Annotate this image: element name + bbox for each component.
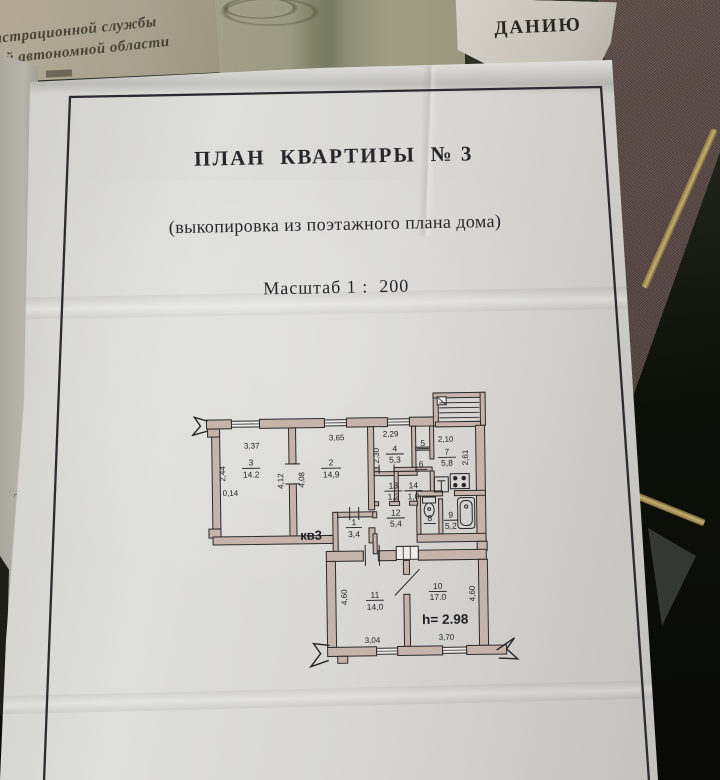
room-6-number: 6 xyxy=(419,459,424,469)
room-2-number: 2 xyxy=(329,457,334,467)
room-13-number: 13 xyxy=(389,480,399,490)
scale-label: Масштаб 1 : 200 xyxy=(96,272,576,302)
room-13-area: 1,2 xyxy=(387,491,399,501)
dim-room11-bottom: 3,04 xyxy=(365,636,381,645)
dim-room7-right: 2,61 xyxy=(461,449,470,465)
room-11-number: 11 xyxy=(370,590,379,600)
room-10-number: 10 xyxy=(433,581,443,591)
banknote-paper xyxy=(215,0,465,76)
room-3-area: 14.2 xyxy=(243,469,260,479)
dim-room2-left: 4,08 xyxy=(297,471,306,487)
room-12-area: 5,4 xyxy=(390,518,402,528)
bathtub-icon xyxy=(458,497,475,528)
dim-room4-top: 2,29 xyxy=(383,429,399,438)
dim-room10-bottom: 3,70 xyxy=(439,633,455,642)
dim-room10-right: 4,60 xyxy=(468,585,477,601)
room-11-area: 14,0 xyxy=(367,602,384,612)
room-8-number: 8 xyxy=(427,513,432,523)
room-9-area: 5,2 xyxy=(445,521,457,531)
floor-plan-svg: 3 14.2 2 14,9 4 5,3 5 6 7 5,8 13 1,2 14 … xyxy=(191,386,529,683)
sink-counter-icon xyxy=(434,477,448,492)
room-14-area: 1,0 xyxy=(407,491,419,501)
dim-room2-top: 3,65 xyxy=(329,433,345,442)
room-1-number: 1 xyxy=(351,517,356,527)
dim-room3-top: 3,37 xyxy=(244,441,260,450)
room-4-area: 5,3 xyxy=(389,454,401,464)
room-9-number: 9 xyxy=(448,510,453,520)
page-subtitle: (выкопировка из поэтажного плана дома) xyxy=(95,209,575,239)
apartment-plan-paper: ПЛАН КВАРТИРЫ № 3 (выкопировка из поэтаж… xyxy=(0,0,720,780)
stove-icon xyxy=(450,473,469,488)
ceiling-height-label: h= 2.98 xyxy=(422,611,469,627)
dim-room11-left: 4,60 xyxy=(340,589,349,605)
room-10-area: 17.0 xyxy=(430,592,447,602)
page-title: ПЛАН КВАРТИРЫ № 3 xyxy=(94,139,574,173)
room-14-number: 14 xyxy=(409,480,419,490)
room-5-number: 5 xyxy=(420,438,425,448)
apartment-number-label: кв3 xyxy=(300,528,322,543)
illegible-stamp-mark xyxy=(46,69,72,77)
floor-plan-drawing: 3 14.2 2 14,9 4 5,3 5 6 7 5,8 13 1,2 14 … xyxy=(191,386,529,683)
room-4-number: 4 xyxy=(392,443,397,453)
title-block: ПЛАН КВАРТИРЫ № 3 (выкопировка из поэтаж… xyxy=(93,103,577,338)
room-3-number: 3 xyxy=(249,457,254,467)
stamp-text: истрационной службы кой автономной облас… xyxy=(0,3,246,71)
room-2-area: 14,9 xyxy=(323,469,340,479)
dim-room3-left-low: 0,14 xyxy=(223,489,239,498)
dim-room3-left: 2,44 xyxy=(218,466,227,482)
room-7-area: 5,8 xyxy=(441,458,453,468)
dim-room7-top: 2,10 xyxy=(438,435,454,444)
room-1-area: 3,4 xyxy=(348,529,360,539)
dim-room3-right: 4,12 xyxy=(276,473,285,489)
photo-of-floor-plan-document: истрационной службы кой автономной облас… xyxy=(0,0,720,780)
torn-paper-text: ДАНИЮ xyxy=(494,14,583,40)
room-7-number: 7 xyxy=(444,447,449,457)
room-12-number: 12 xyxy=(391,507,401,517)
dim-room4-left: 2,30 xyxy=(372,447,381,463)
